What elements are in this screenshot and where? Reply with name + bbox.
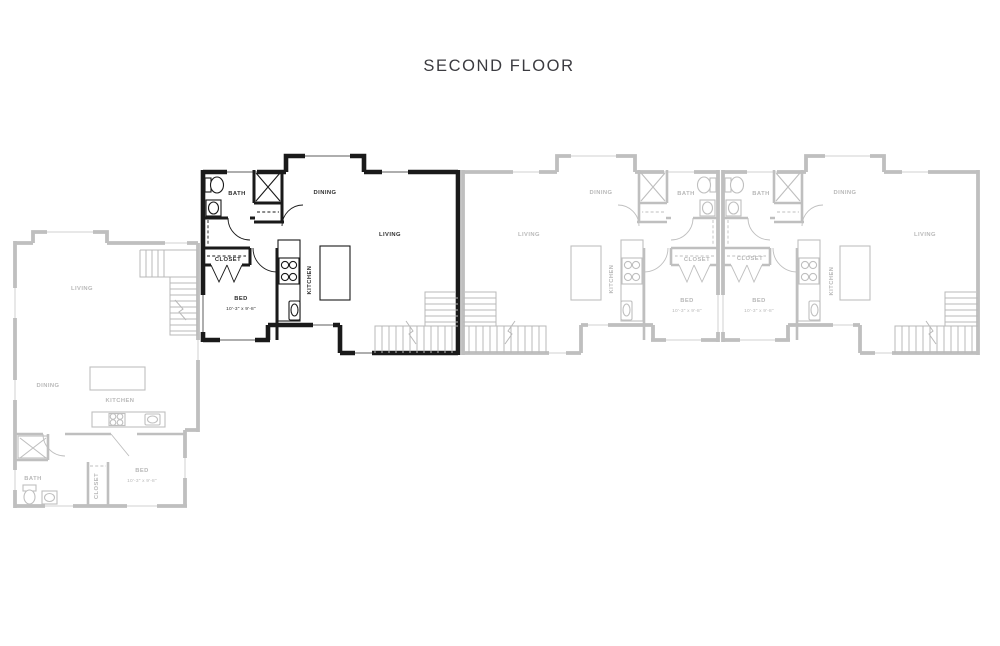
unit-3-plan[interactable]: LIVING DINING BATH CLOSET KITCHEN BED 10… [463, 156, 718, 355]
unit-1-kitchen-label: KITCHEN [106, 398, 135, 404]
unit-2-bath-label: BATH [228, 191, 245, 197]
unit-2-geometry [203, 156, 458, 355]
unit-1-closet-label: CLOSET [94, 473, 100, 499]
window-marker [15, 232, 198, 506]
stove-icon [109, 414, 125, 426]
unit-4-kitchen-label: KITCHEN [829, 267, 835, 296]
unit-1-bed-dimensions: 10'-3" x 9'-8" [127, 478, 157, 484]
unit-2-dining-label: DINING [314, 190, 337, 196]
unit-3-bed-dimensions: 10'-3" x 9'-8" [672, 308, 702, 314]
unit-3-living-label: LIVING [518, 232, 540, 238]
kitchen-sink-icon [145, 414, 160, 425]
unit-3-bath-label: BATH [677, 191, 694, 197]
floor-plan-canvas: SECOND FLOOR [0, 0, 1000, 646]
unit-2-living-label: LIVING [379, 232, 401, 238]
unit-1-living-label: LIVING [71, 286, 93, 292]
door-arcs [43, 434, 129, 456]
unit-2-bed-label: BED [234, 296, 248, 302]
floor-plan-page: SECOND FLOOR [0, 0, 1000, 646]
toilet-icon [23, 485, 36, 504]
unit-3-kitchen-label: KITCHEN [609, 265, 615, 294]
unit-1-plan[interactable]: LIVING DINING KITCHEN BATH CLOSET BED 10… [15, 232, 198, 508]
stair-break-line [175, 300, 186, 320]
unit-4-bed-label: BED [752, 298, 766, 304]
unit-1-bath-label: BATH [24, 476, 41, 482]
kitchen-island [90, 367, 145, 390]
unit-3-bed-label: BED [680, 298, 694, 304]
shower-icon [20, 438, 46, 458]
bath-sink-icon [42, 491, 57, 504]
unit-4-bed-dimensions: 10'-3" x 9'-8" [744, 308, 774, 314]
unit-3-closet-label: CLOSET [684, 257, 710, 263]
unit-2-plan[interactable]: BATH DINING LIVING CLOSET KITCHEN BED 10… [203, 156, 458, 355]
unit-4-dining-label: DINING [834, 190, 857, 196]
unit-2-bed-dimensions: 10'-3" x 9'-8" [226, 306, 256, 312]
unit-2-closet-label: CLOSET [215, 257, 241, 263]
unit-1-geometry [15, 232, 198, 508]
unit-4-plan[interactable]: BATH DINING LIVING CLOSET KITCHEN BED 10… [723, 156, 978, 355]
unit-3-geometry [463, 156, 718, 355]
unit-4-bath-label: BATH [752, 191, 769, 197]
page-title: SECOND FLOOR [423, 57, 574, 75]
unit-1-dining-label: DINING [37, 383, 60, 389]
unit-2-kitchen-label: KITCHEN [307, 266, 313, 295]
unit-1-bed-label: BED [135, 468, 149, 474]
unit-4-living-label: LIVING [914, 232, 936, 238]
unit-4-closet-label: CLOSET [737, 256, 763, 262]
unit-3-dining-label: DINING [590, 190, 613, 196]
stairs [140, 250, 197, 335]
